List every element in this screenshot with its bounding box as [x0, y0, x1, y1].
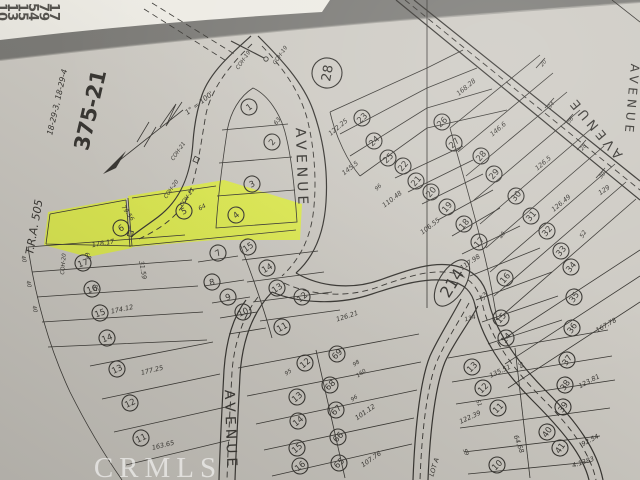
index-tab-number: 17 [46, 3, 61, 21]
watermark-text: CRMLS [94, 452, 222, 480]
svg-text:AVENUE: AVENUE [292, 127, 311, 208]
parcel-map-canvas: 101315547917 [0, 0, 640, 480]
index-tab-numbers: 101315547917 [0, 3, 61, 21]
svg-text:AVENUE: AVENUE [221, 389, 240, 470]
parcel-map-photo: 101315547917 [0, 0, 640, 480]
street-name-label: AVENUE [221, 389, 240, 470]
svg-text:28: 28 [319, 64, 337, 83]
street-name-label: AVENUE [292, 127, 311, 208]
